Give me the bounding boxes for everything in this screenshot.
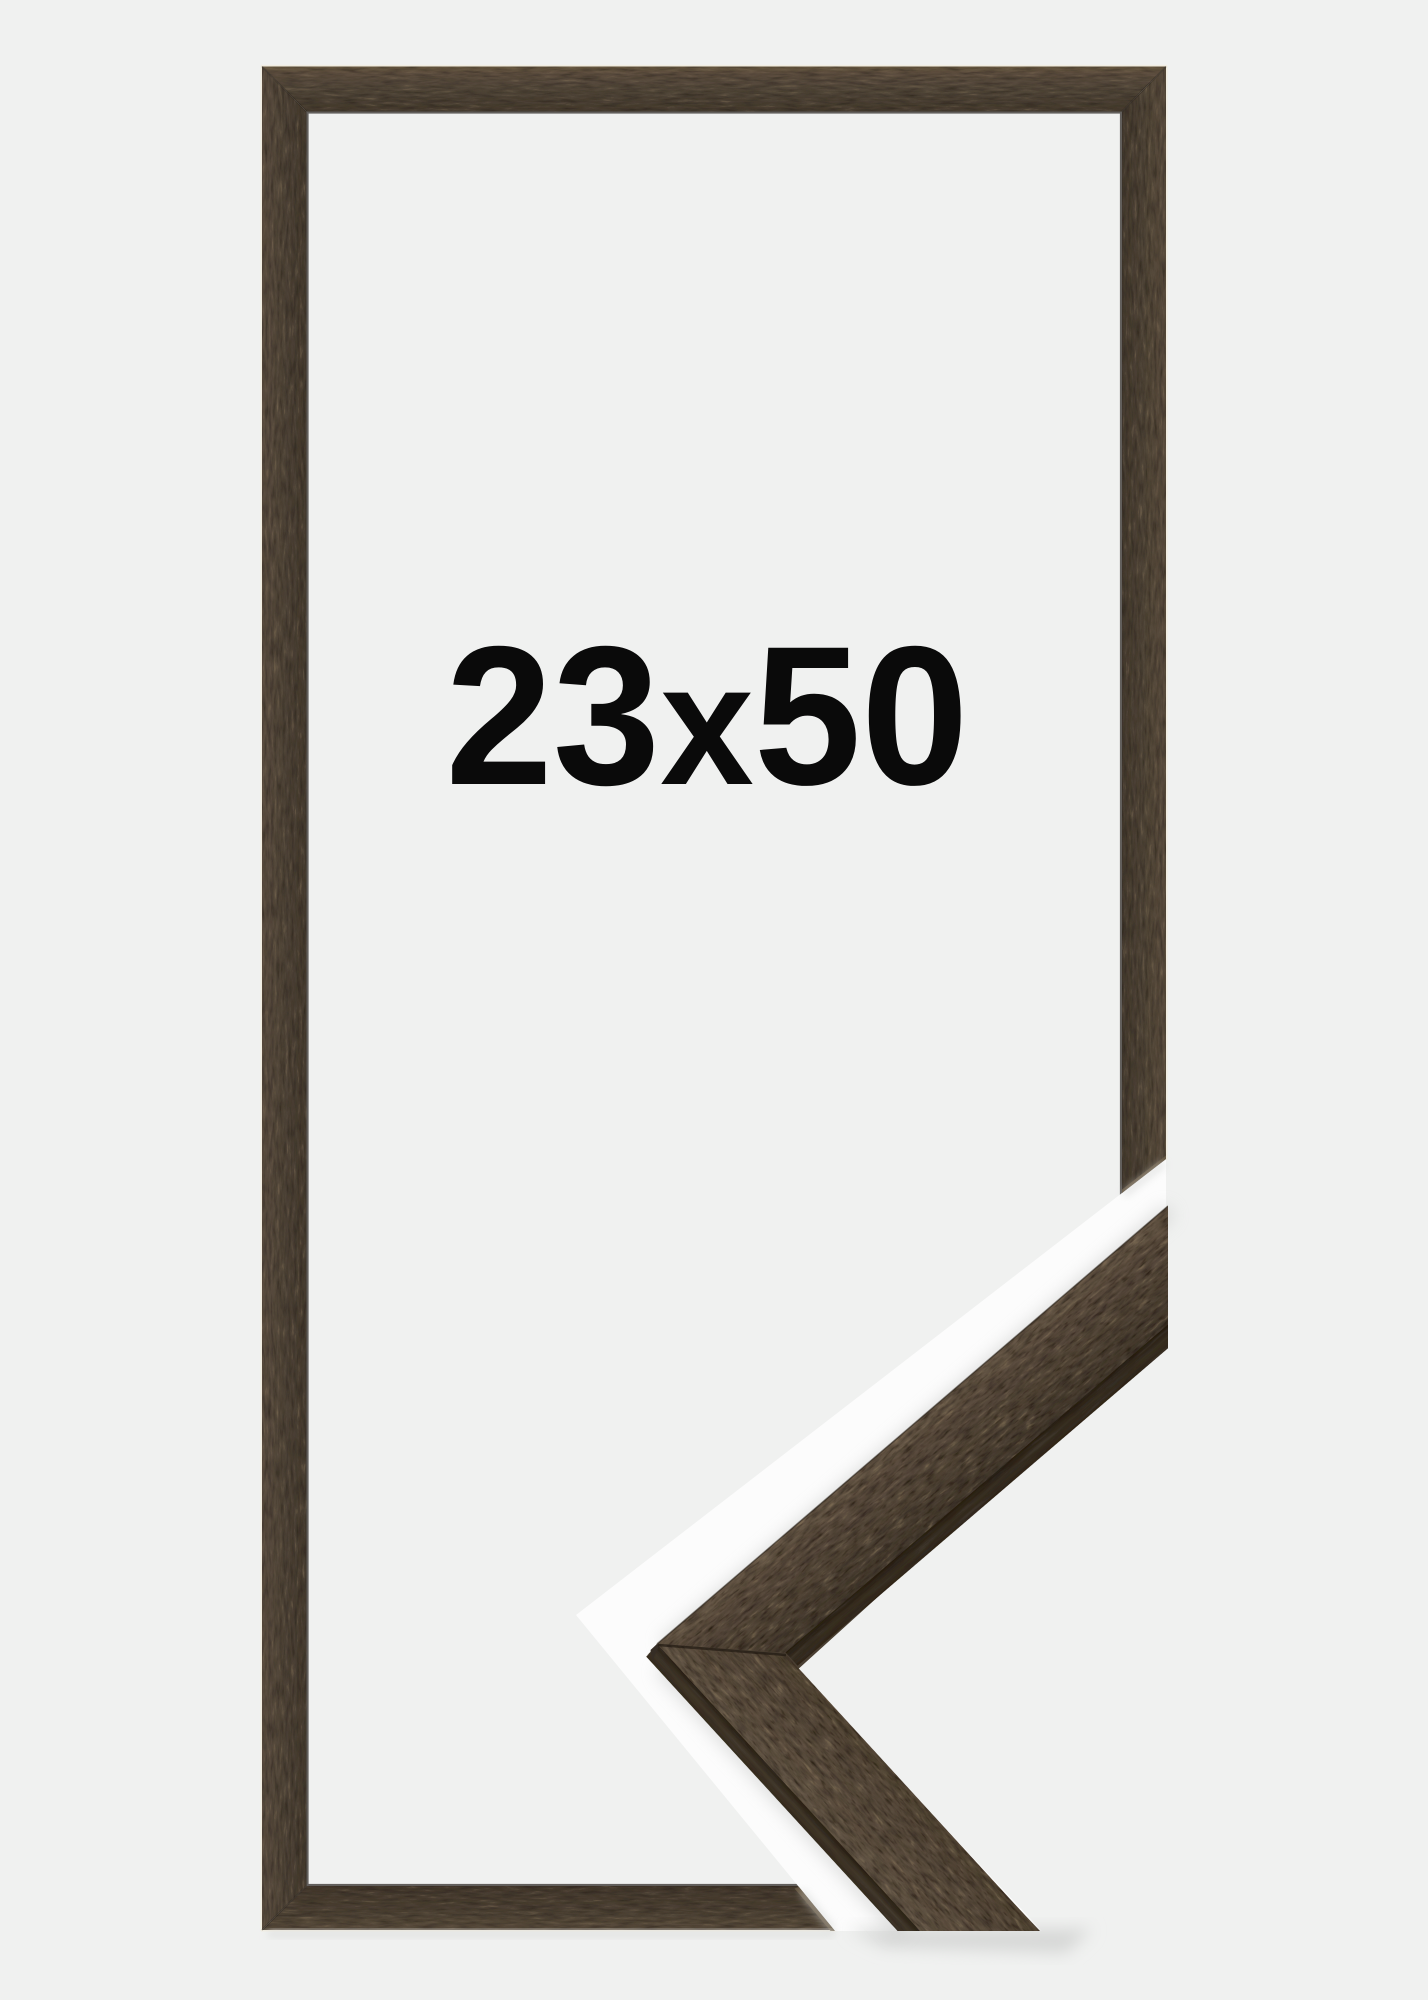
svg-text:23x50: 23x50 bbox=[446, 605, 969, 826]
